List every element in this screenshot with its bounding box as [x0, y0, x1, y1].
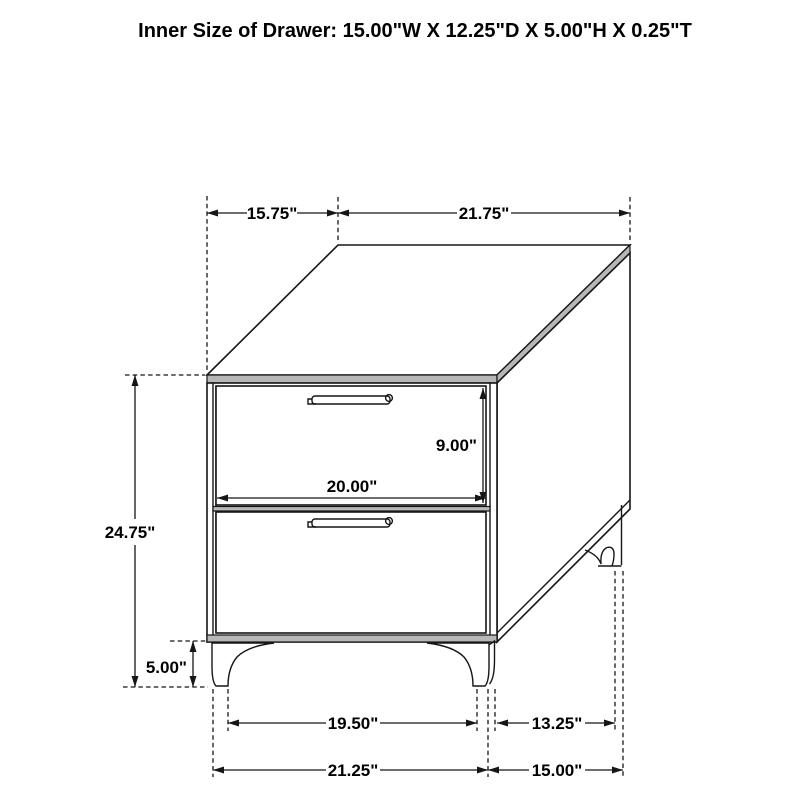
- dim-label-drawer-width: 20.00": [327, 477, 378, 496]
- dim-label-overall-height: 24.75": [105, 523, 156, 542]
- dim-label-front-overall-width: 21.25": [328, 761, 379, 780]
- drawer-divider-band: [213, 507, 490, 512]
- dimension-top-depth: 15.75": [207, 204, 338, 223]
- dimension-overall-height: 24.75": [105, 375, 156, 687]
- dim-label-side-leg-inner-span: 13.25": [532, 714, 583, 733]
- top-edge-front-band: [207, 375, 497, 383]
- dim-label-drawer-height: 9.00": [436, 436, 477, 455]
- dim-label-top-width: 21.75": [459, 204, 510, 223]
- front-left-leg: [212, 643, 274, 686]
- handle-bar: [312, 519, 390, 527]
- handle-bar: [312, 396, 390, 404]
- front-right-leg-side-face: [489, 641, 495, 684]
- dim-label-top-depth: 15.75": [247, 204, 298, 223]
- dim-label-leg-height: 5.00": [146, 658, 187, 677]
- page-title: Inner Size of Drawer: 15.00"W X 12.25"D …: [138, 20, 692, 42]
- dimension-front-overall-width: 21.25": [213, 761, 488, 780]
- dimension-side-leg-inner-span: 13.25": [497, 714, 615, 733]
- dimension-side-overall-depth: 15.00": [488, 761, 623, 780]
- dimension-front-leg-inner-span: 19.50": [228, 714, 477, 733]
- drawer-bottom-face-front: [216, 512, 486, 633]
- front-right-leg: [427, 643, 489, 686]
- drawer-bottom-handle: [308, 518, 392, 527]
- drawer-top-handle: [308, 395, 392, 404]
- dimension-diagram-page: Inner Size of Drawer: 15.00"W X 12.25"D …: [0, 0, 800, 800]
- dimension-top-width: 21.75": [338, 204, 630, 223]
- dimension-leg-height: 5.00": [146, 641, 197, 687]
- dim-label-side-overall-depth: 15.00": [532, 761, 583, 780]
- nightstand-drawing: [207, 245, 630, 686]
- dim-label-front-leg-inner-span: 19.50": [328, 714, 379, 733]
- bottom-rail-band: [207, 635, 497, 642]
- diagram-canvas: Inner Size of Drawer: 15.00"W X 12.25"D …: [0, 0, 800, 800]
